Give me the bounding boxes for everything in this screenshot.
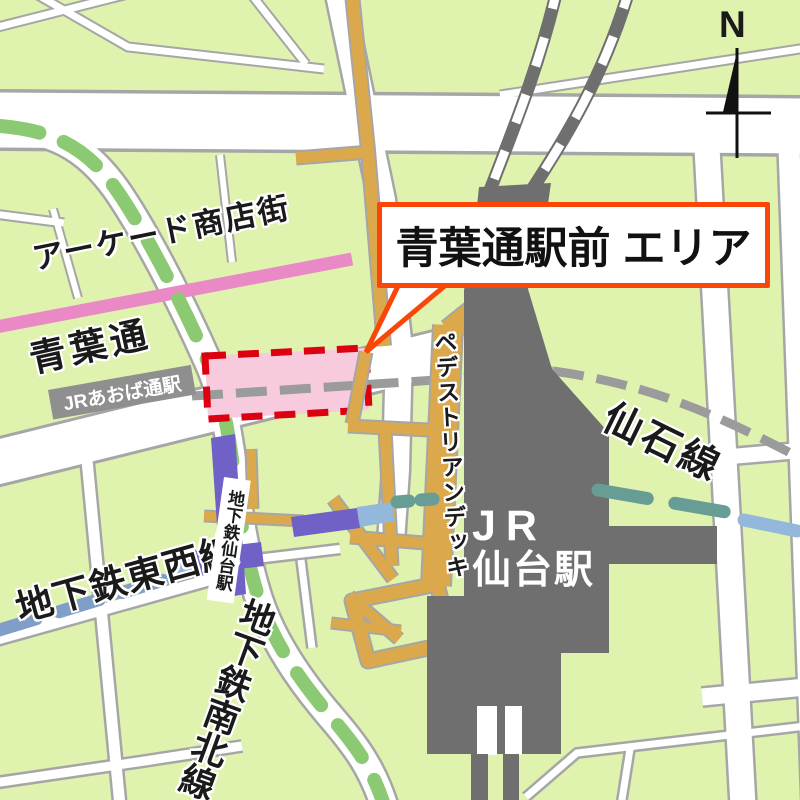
- compass-north-label: N: [719, 6, 746, 45]
- area-callout-box: 青葉通駅前 エリア: [377, 202, 770, 288]
- map-canvas: アーケード商店街 青葉通 地下鉄東西線 地下鉄南北線 仙石線 ペデストリアンデッ…: [0, 0, 800, 800]
- jr-sendai-station-label-line2: 仙台駅: [472, 551, 595, 592]
- area-callout-label: 青葉通駅前 エリア: [396, 214, 752, 276]
- jr-sendai-station-label: JR 仙台駅: [472, 504, 595, 592]
- jr-sendai-station-label-line1: JR: [472, 504, 595, 549]
